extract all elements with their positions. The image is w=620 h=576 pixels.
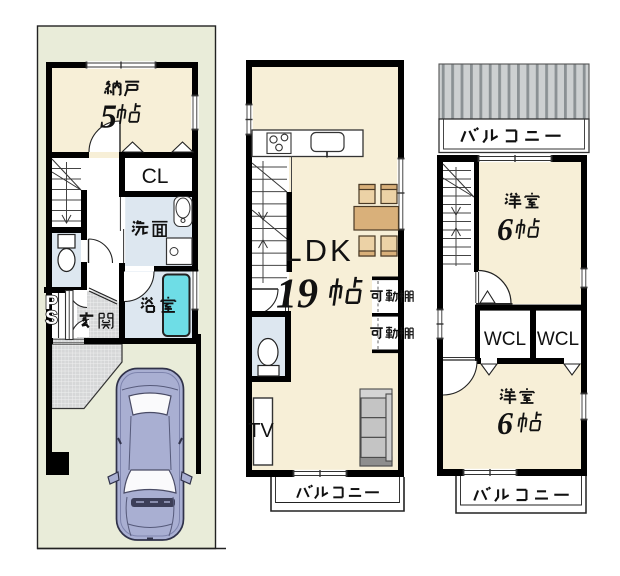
svg-text:WCL: WCL xyxy=(484,329,526,350)
svg-text:S: S xyxy=(45,308,58,329)
svg-text:LDK: LDK xyxy=(284,233,353,268)
svg-text:WCL: WCL xyxy=(537,329,579,350)
svg-text:6: 6 xyxy=(497,211,513,247)
svg-text:CL: CL xyxy=(142,165,169,188)
svg-text:TV: TV xyxy=(248,420,274,442)
svg-text:6: 6 xyxy=(497,405,513,441)
svg-text:19: 19 xyxy=(276,272,318,318)
svg-text:5: 5 xyxy=(100,99,117,136)
